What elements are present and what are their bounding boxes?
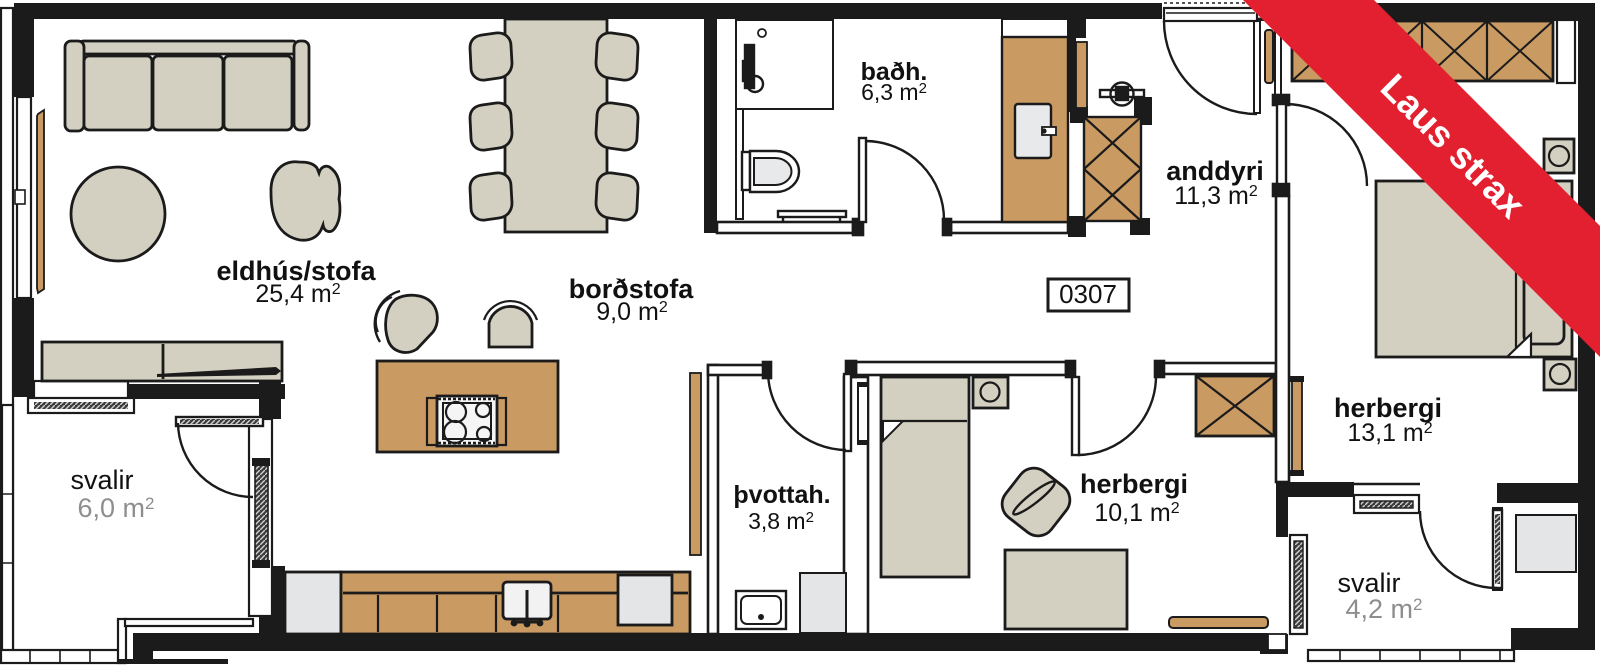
svg-text:0307: 0307 — [1059, 279, 1117, 309]
svg-text:svalir: svalir — [70, 465, 133, 495]
svg-text:þvottah.: þvottah. — [733, 481, 830, 509]
svg-text:9,0 m2: 9,0 m2 — [596, 298, 668, 326]
svg-text:13,1 m2: 13,1 m2 — [1347, 419, 1432, 447]
svg-text:10,1 m2: 10,1 m2 — [1094, 499, 1179, 527]
svg-text:6,3 m2: 6,3 m2 — [861, 79, 927, 105]
svg-text:6,0 m2: 6,0 m2 — [78, 493, 155, 523]
svg-text:3,8 m2: 3,8 m2 — [748, 508, 814, 534]
svg-text:25,4 m2: 25,4 m2 — [255, 280, 340, 308]
svg-text:11,3 m2: 11,3 m2 — [1174, 182, 1258, 210]
svg-text:4,2 m2: 4,2 m2 — [1346, 594, 1423, 624]
svg-text:herbergi: herbergi — [1080, 469, 1188, 499]
